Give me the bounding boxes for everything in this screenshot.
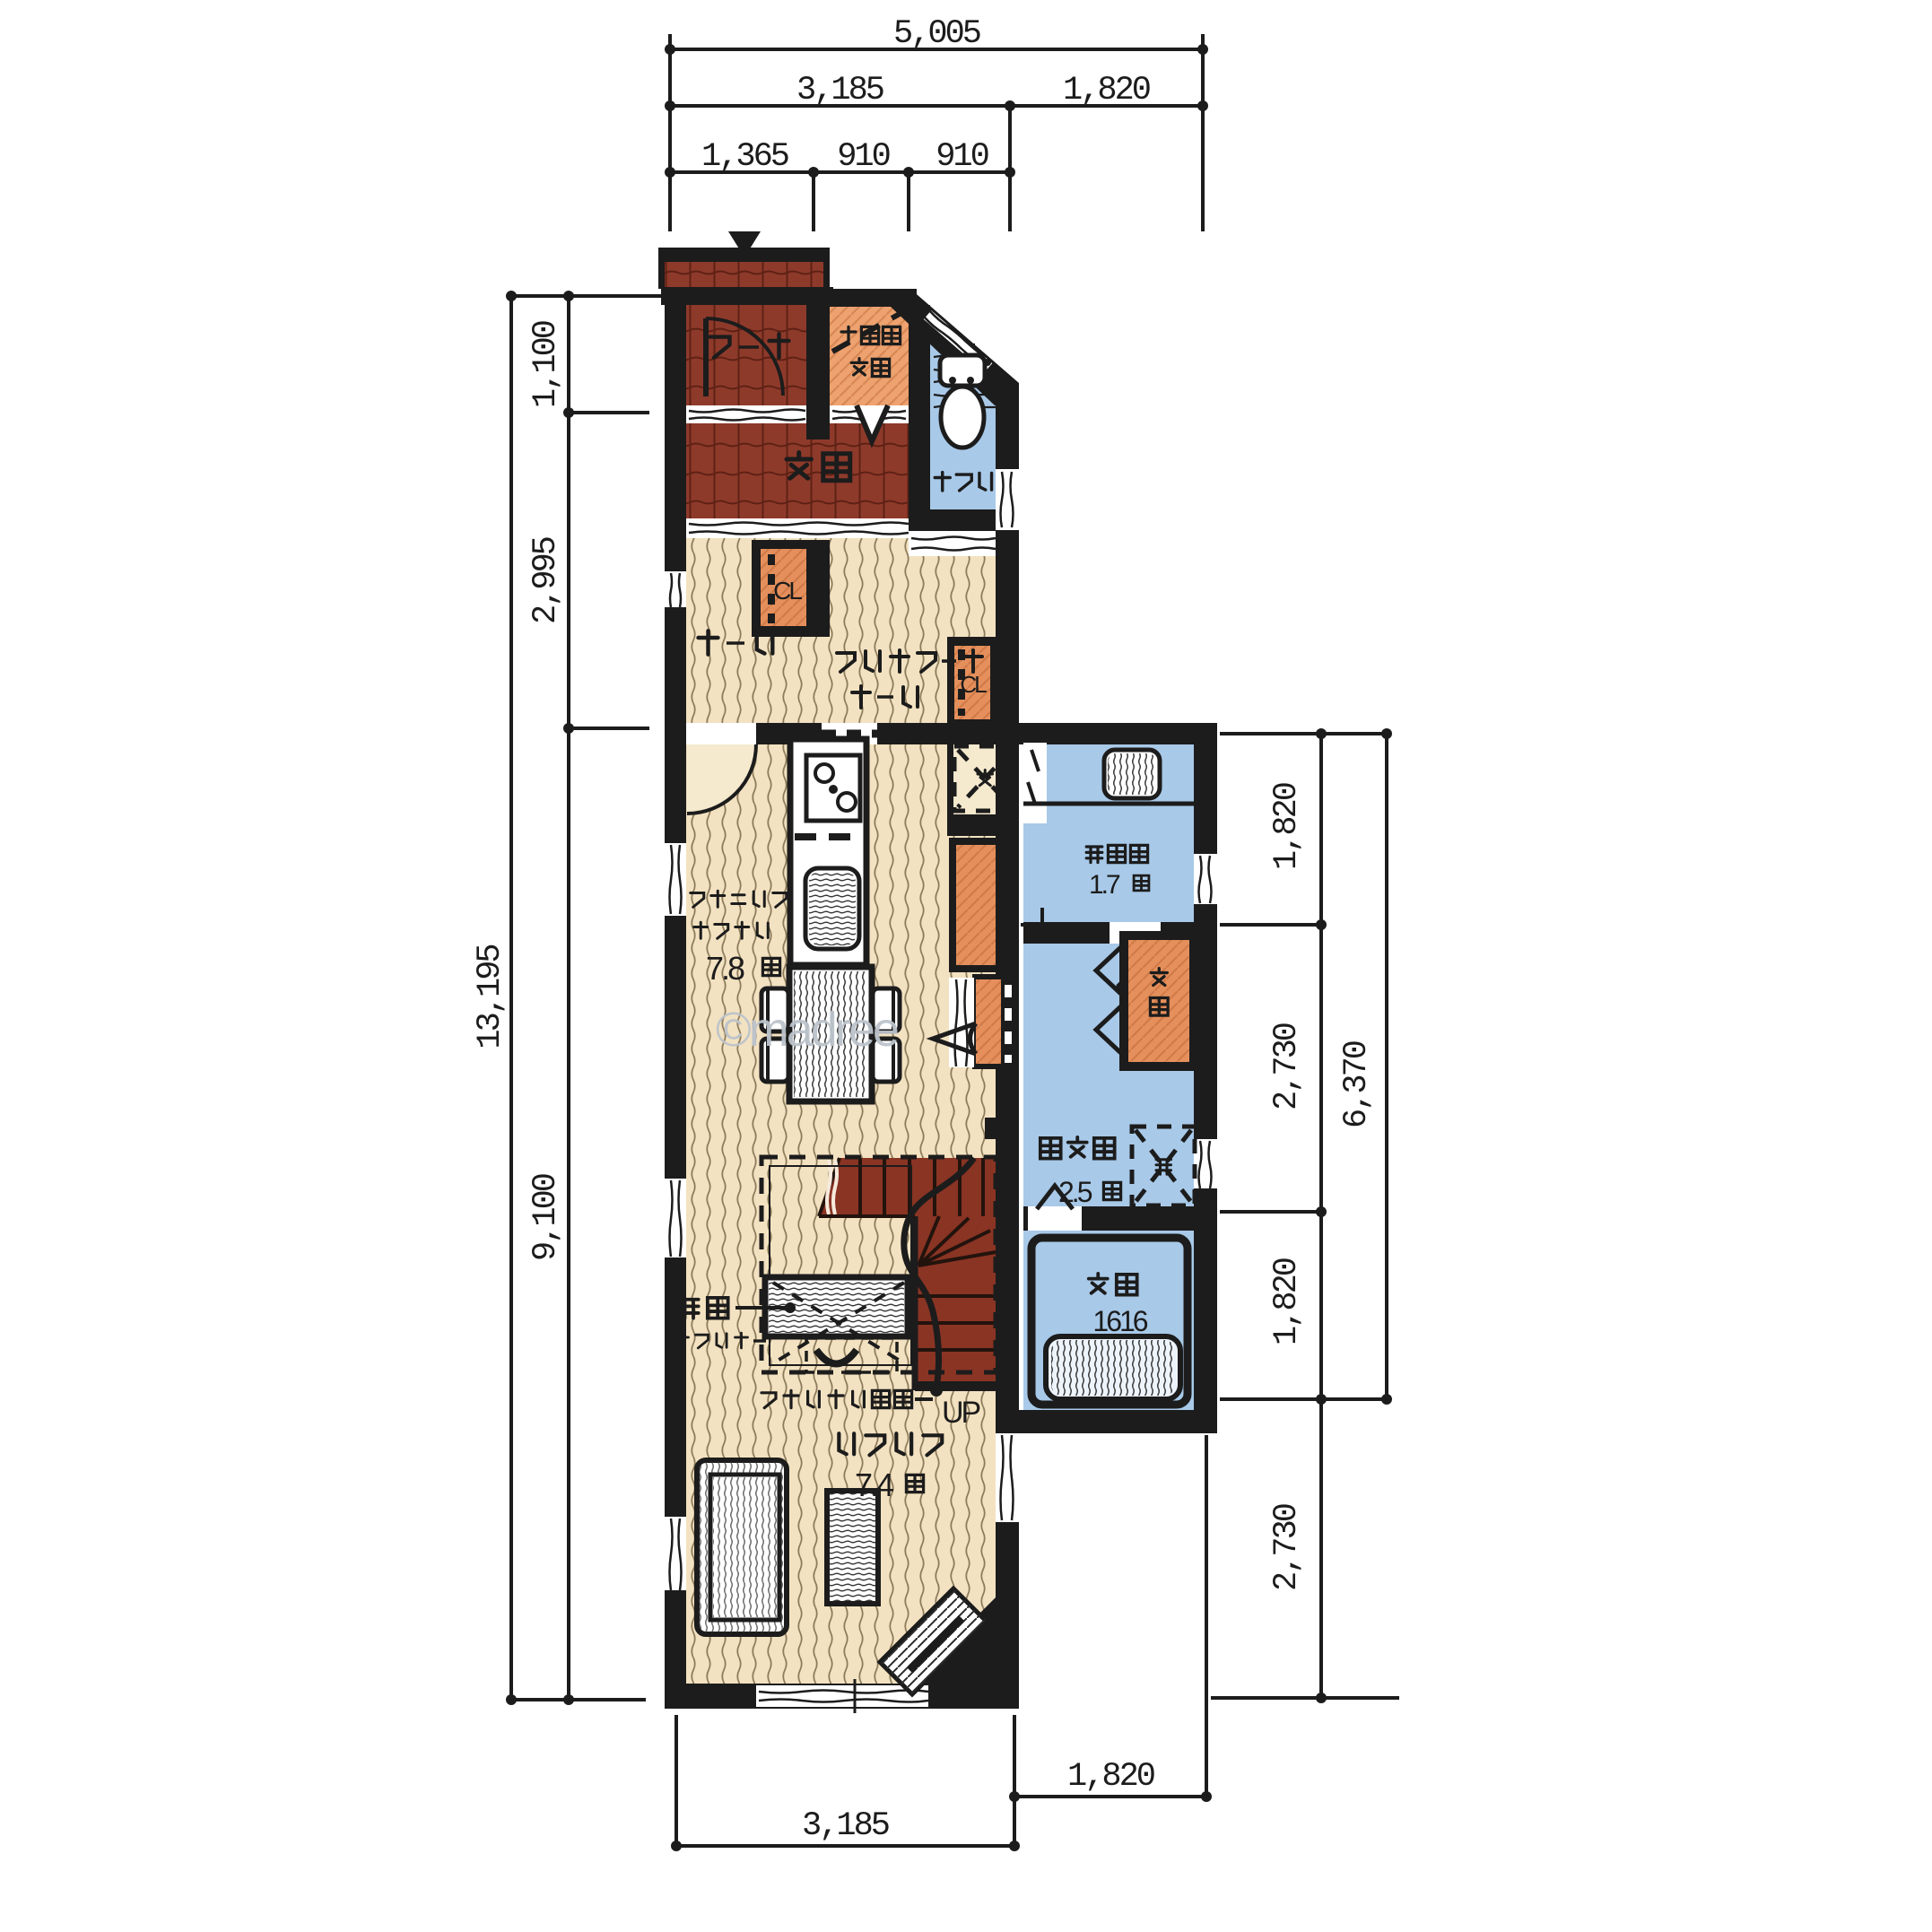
svg-text:9,100: 9,100 [527, 1174, 565, 1261]
svg-text:6,370: 6,370 [1338, 1041, 1376, 1128]
svg-text:7.4: 7.4 [855, 1466, 893, 1503]
svg-text:3,185: 3,185 [796, 72, 883, 109]
svg-text:1,365: 1,365 [701, 138, 788, 176]
svg-text:UP: UP [942, 1396, 980, 1430]
svg-text:7.8: 7.8 [706, 950, 744, 987]
svg-text:3,185: 3,185 [802, 1807, 889, 1845]
svg-text:910: 910 [936, 138, 988, 176]
svg-text:1,100: 1,100 [527, 321, 565, 408]
svg-text:1,820: 1,820 [1268, 783, 1306, 870]
svg-text:2.5: 2.5 [1058, 1176, 1092, 1208]
svg-text:1,820: 1,820 [1063, 72, 1150, 109]
svg-text:1616: 1616 [1092, 1305, 1147, 1337]
svg-text:13,195: 13,195 [472, 945, 509, 1049]
svg-text:2,995: 2,995 [527, 537, 565, 624]
svg-text:5,005: 5,005 [893, 15, 980, 53]
svg-text:1,820: 1,820 [1067, 1758, 1154, 1796]
svg-text:2,730: 2,730 [1268, 1504, 1306, 1591]
svg-text:CL: CL [773, 577, 802, 605]
svg-text:1.7: 1.7 [1089, 870, 1120, 900]
svg-text:1,820: 1,820 [1268, 1258, 1306, 1345]
svg-text:910: 910 [837, 138, 889, 176]
svg-text:2,730: 2,730 [1268, 1023, 1306, 1110]
svg-text:CL: CL [960, 671, 987, 698]
svg-text:©madree: ©madree [716, 1003, 898, 1057]
